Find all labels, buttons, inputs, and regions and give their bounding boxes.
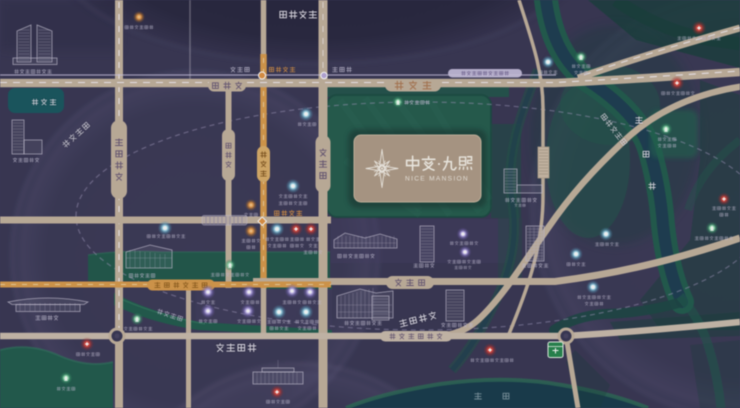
svg-text:NICE MANSION: NICE MANSION — [405, 176, 469, 183]
